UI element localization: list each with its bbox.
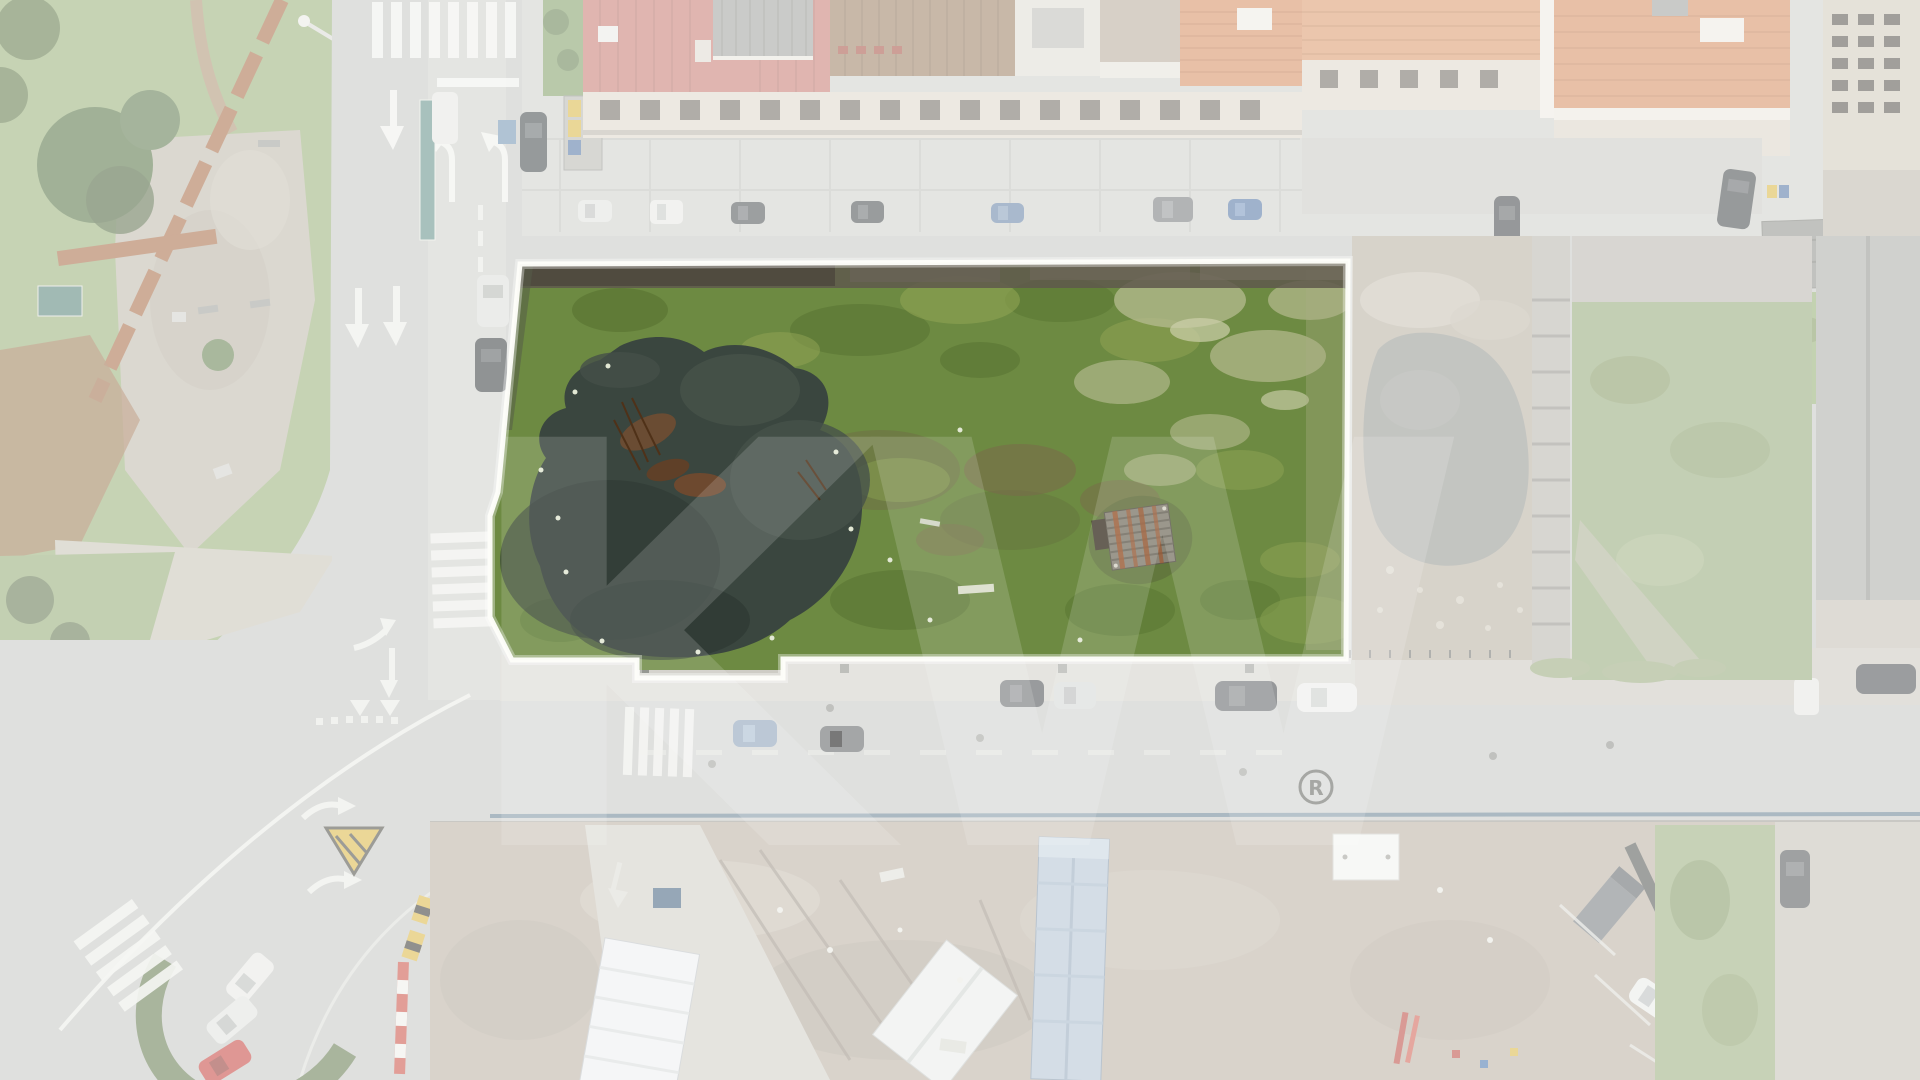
- watermark-letters: KW: [450, 326, 1458, 978]
- registered-r: R: [1308, 776, 1323, 800]
- aerial-drone-photo: S: [0, 0, 1920, 1080]
- watermark: KW R: [450, 326, 1458, 978]
